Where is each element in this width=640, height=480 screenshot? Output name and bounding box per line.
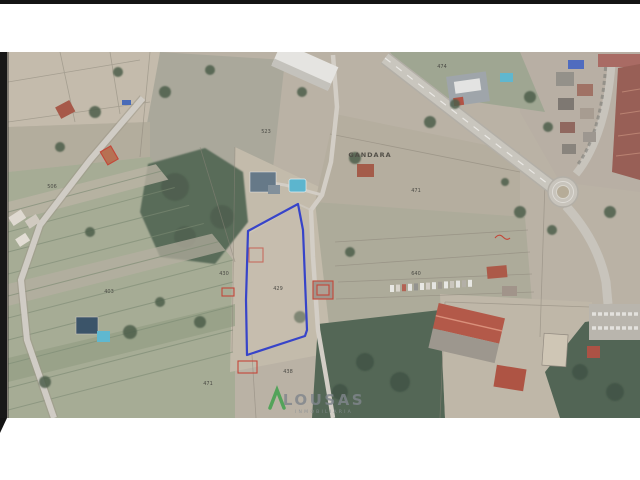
parcel-label-403: 403 <box>104 289 114 295</box>
place-label-gandara: GANDARA <box>348 151 391 159</box>
watermark-brand: LOUSAS <box>283 391 365 409</box>
parcel-label-523: 523 <box>261 129 271 135</box>
photo-corner-edge <box>0 418 7 433</box>
aerial-map: 506 523 474 GANDARA 471 430 429 640 403 … <box>0 52 640 418</box>
photo-haze <box>0 52 640 418</box>
photo-canvas: 506 523 474 GANDARA 471 430 429 640 403 … <box>0 0 640 480</box>
parcel-label-471: 471 <box>411 188 421 194</box>
parcel-label-438: 438 <box>283 369 293 375</box>
parcel-label-474: 474 <box>437 64 447 70</box>
photo-top-border <box>0 0 640 4</box>
parcel-label-471b: 471 <box>203 381 213 387</box>
parcel-label-429: 429 <box>273 286 283 292</box>
parcel-label-430: 430 <box>219 271 229 277</box>
parcel-label-640: 640 <box>411 271 421 277</box>
watermark-tagline: INMOBILIARIA <box>295 409 353 415</box>
photo-left-border <box>0 52 7 418</box>
aerial-map-image: 506 523 474 GANDARA 471 430 429 640 403 … <box>0 52 640 418</box>
parcel-label-506: 506 <box>47 184 57 190</box>
